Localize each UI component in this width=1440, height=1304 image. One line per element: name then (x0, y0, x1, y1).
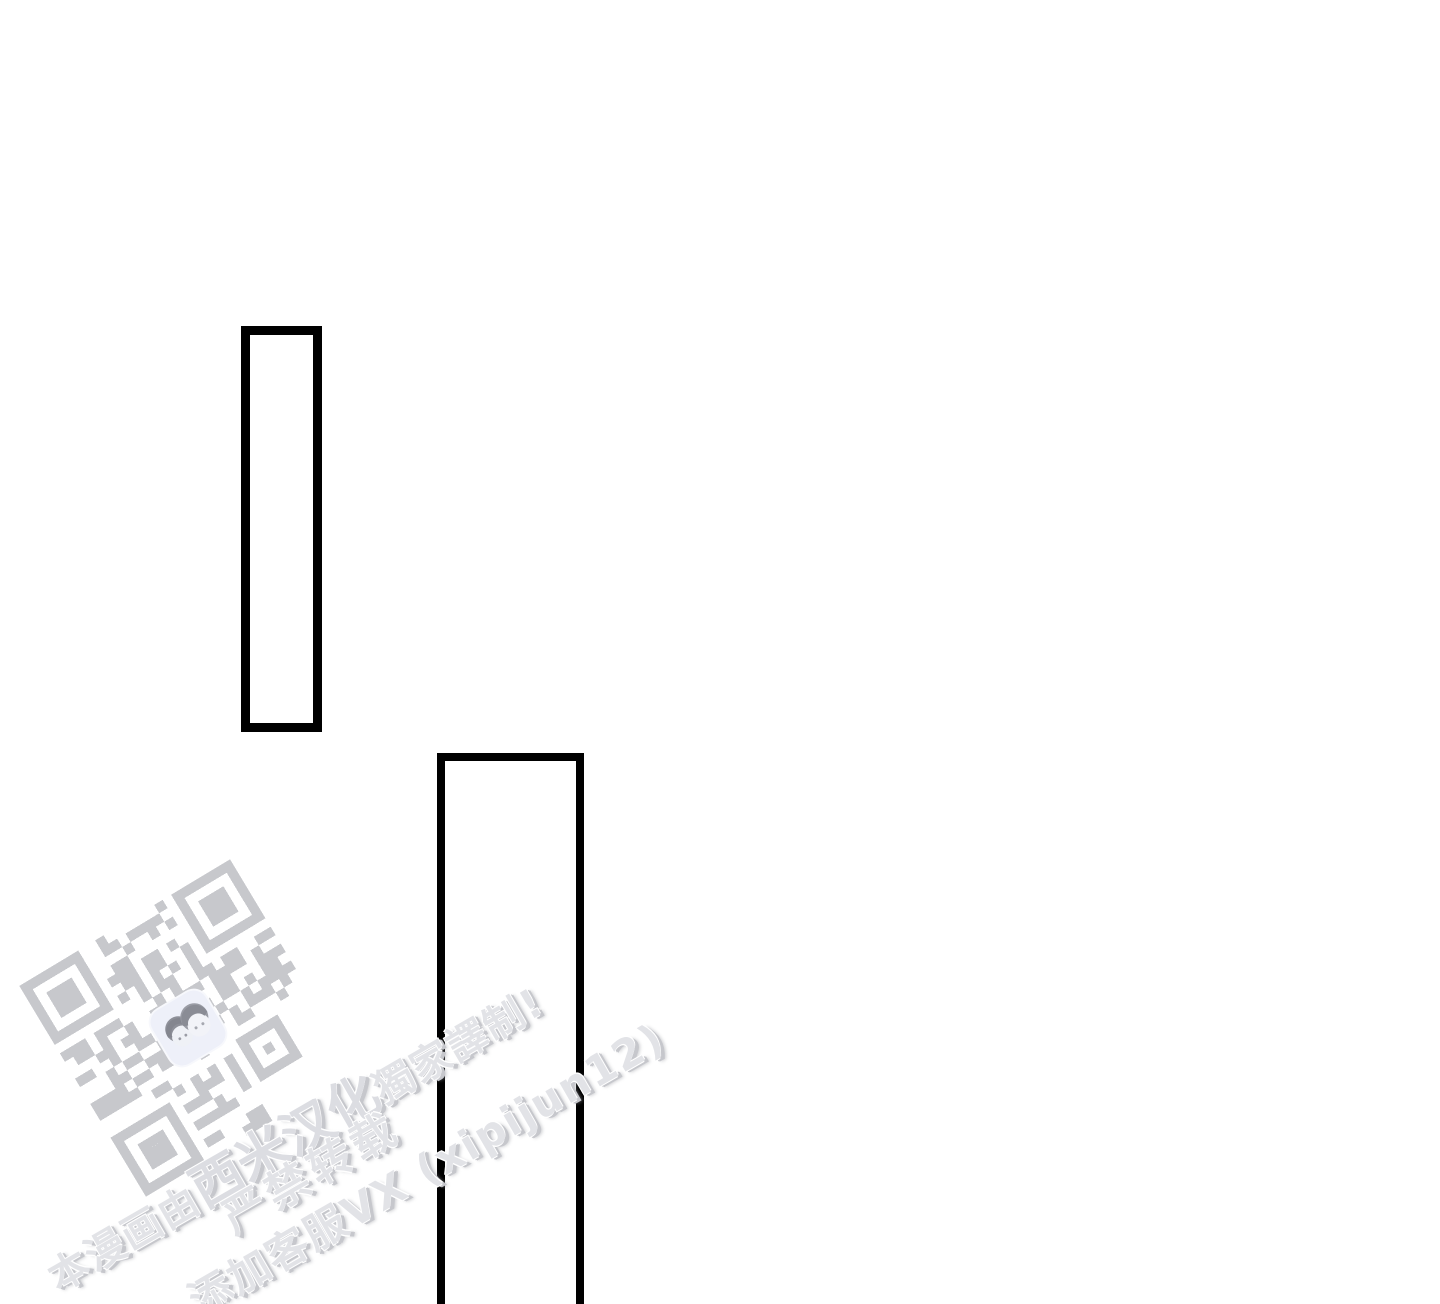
comic-panel-top (241, 326, 322, 732)
comic-page-canvas: 本漫画由西米汉化獨家譯制! 严禁转载 添加客服VX (xipijun12) (0, 0, 1440, 1304)
